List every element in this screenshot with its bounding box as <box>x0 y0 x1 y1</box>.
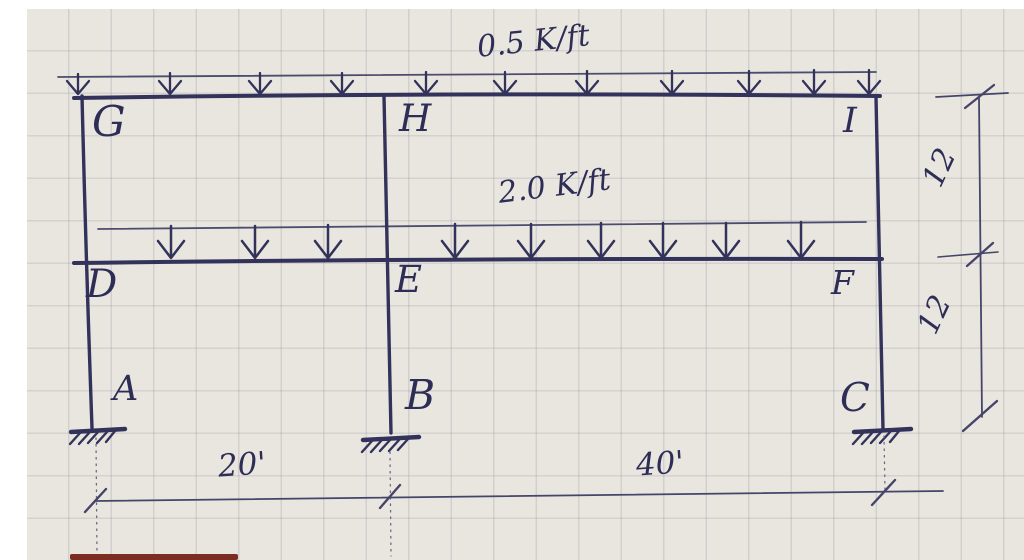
joint-label-g: G <box>92 101 126 143</box>
middle-beam <box>74 259 882 263</box>
photo-of-sketch: 0.5 K/ft 2.0 K/ft G H I D E F A B C 20' … <box>0 0 1024 560</box>
fixed-support-a <box>70 429 125 444</box>
right-dimension-line <box>936 85 1008 431</box>
tick-bottom <box>963 401 997 431</box>
middle-load-line <box>98 222 866 229</box>
support-label-b: B <box>405 375 435 416</box>
fixed-support-c <box>853 429 911 444</box>
joint-label-e: E <box>395 261 422 298</box>
support-label-a: A <box>113 372 138 407</box>
middle-column <box>384 96 391 433</box>
joint-label-h: H <box>399 100 431 137</box>
top-beam <box>74 94 880 98</box>
joint-label-i: I <box>843 104 857 139</box>
fixed-support-b <box>362 437 419 452</box>
joint-label-f: F <box>831 266 854 299</box>
joint-label-d: D <box>86 265 117 304</box>
bottom-dimension-line <box>85 436 943 556</box>
frame-sketch <box>0 0 1024 560</box>
dimension-label-20ft: 20' <box>217 448 267 482</box>
photo-edge-artifact <box>70 554 238 560</box>
support-label-c: C <box>840 379 870 418</box>
dimension-label-40ft: 40' <box>635 447 685 481</box>
top-load-line <box>58 72 876 77</box>
right-column <box>876 97 883 429</box>
